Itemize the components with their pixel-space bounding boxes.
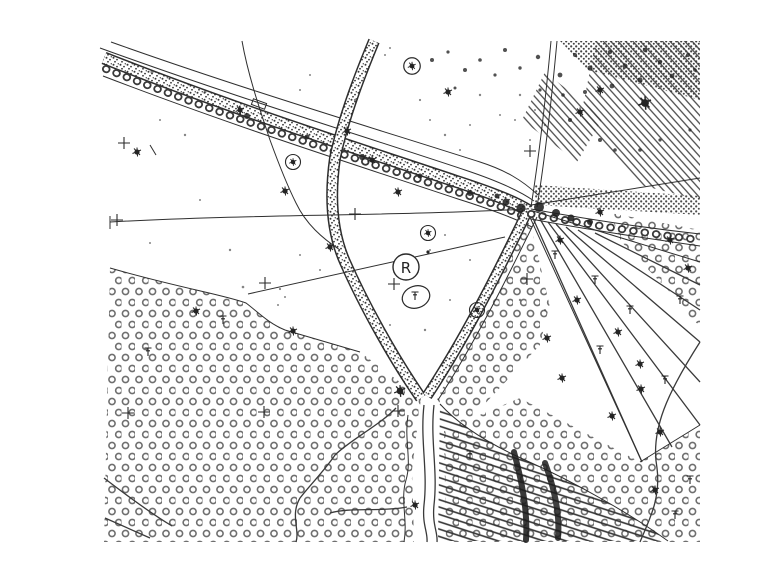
map-graphic: R [0,0,777,577]
zone-r-label: R [401,259,411,277]
map-scan: R [0,0,777,577]
